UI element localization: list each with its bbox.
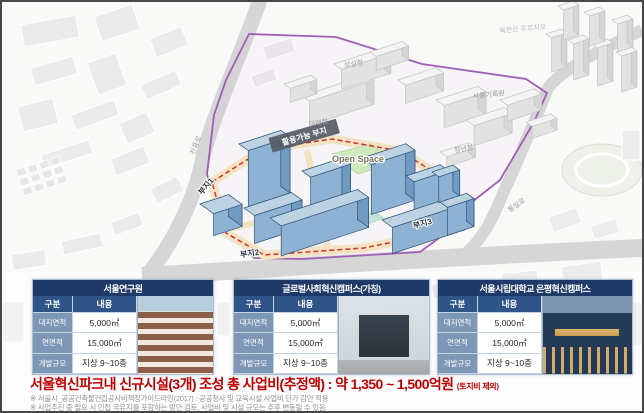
facility-table: 구분 내용 대지면적 5,000㎡ 연면적 15,000㎡ 개발규모 지상 9~… [234, 296, 338, 374]
row-value: 지상 9~10층 [73, 354, 137, 374]
facility-table: 구분 내용 대지면적 5,000㎡ 연면적 15,000㎡ 개발규모 지상 9~… [438, 296, 542, 374]
cost-summary: 서울혁신파크내 신규시설(3개) 조성 총 사업비(추정액) : 약 1,350… [30, 376, 636, 412]
col-header-type: 구분 [438, 296, 478, 313]
row-label: 대지면적 [33, 313, 73, 333]
cost-headline: 서울혁신파크내 신규시설(3개) 조성 총 사업비(추정액) : 약 1,350… [30, 376, 636, 395]
row-value: 5,000㎡ [73, 313, 137, 333]
row-label: 연면적 [33, 333, 73, 353]
cost-headline-suffix: (토지비 제외) [457, 382, 499, 391]
facility-card-global-campus: 글로벌사회혁신캠퍼스(가칭) 구분 내용 대지면적 5,000㎡ 연면적 15,… [233, 279, 430, 375]
facility-card-seoul-institute: 서울연구원 구분 내용 대지면적 5,000㎡ 연면적 15,000㎡ 개발규모… [32, 279, 214, 375]
cost-headline-text: 서울혁신파크내 신규시설(3개) 조성 총 사업비(추정액) : 약 1,350… [30, 376, 453, 392]
row-label: 대지면적 [234, 313, 274, 333]
row-value: 5,000㎡ [478, 313, 542, 333]
row-label: 대지면적 [438, 313, 478, 333]
row-value: 지상 9~10층 [478, 354, 542, 374]
row-label: 개발규모 [33, 354, 73, 374]
row-value: 지상 9~10층 [274, 354, 338, 374]
col-header-content: 내용 [274, 296, 338, 313]
row-value: 15,000㎡ [274, 333, 338, 353]
facility-photo-brick-building [137, 296, 213, 374]
row-label: 개발규모 [438, 354, 478, 374]
facility-title: 글로벌사회혁신캠퍼스(가칭) [234, 280, 429, 296]
facility-photo-glass-cube-building [338, 296, 429, 374]
row-label: 연면적 [438, 333, 478, 353]
facility-card-uos-campus: 서울시립대학교 은평혁신캠퍼스 구분 내용 대지면적 5,000㎡ 연면적 15… [437, 279, 633, 375]
col-header-content: 내용 [478, 296, 542, 313]
col-header-type: 구분 [33, 296, 73, 313]
open-space-label: Open Space [332, 154, 384, 164]
footnote-2: ※ 사업추진 중 필요 시 인접 국유지를 포함하는 방안 검토, 사업비 및 … [30, 404, 636, 413]
row-label: 개발규모 [234, 354, 274, 374]
row-value: 15,000㎡ [73, 333, 137, 353]
row-label: 연면적 [234, 333, 274, 353]
slide-frame: 활용가능 부지 진흥로 통일로 북한산 푸르지오 상상청 미래청 서울기록원 청… [0, 0, 644, 413]
facility-photo-night-glass-building [542, 296, 632, 374]
row-value: 5,000㎡ [274, 313, 338, 333]
col-header-type: 구분 [234, 296, 274, 313]
facility-table: 구분 내용 대지면적 5,000㎡ 연면적 15,000㎡ 개발규모 지상 9~… [33, 296, 137, 374]
facility-title: 서울연구원 [33, 280, 213, 296]
col-header-content: 내용 [73, 296, 137, 313]
facility-title: 서울시립대학교 은평혁신캠퍼스 [438, 280, 632, 296]
row-value: 15,000㎡ [478, 333, 542, 353]
